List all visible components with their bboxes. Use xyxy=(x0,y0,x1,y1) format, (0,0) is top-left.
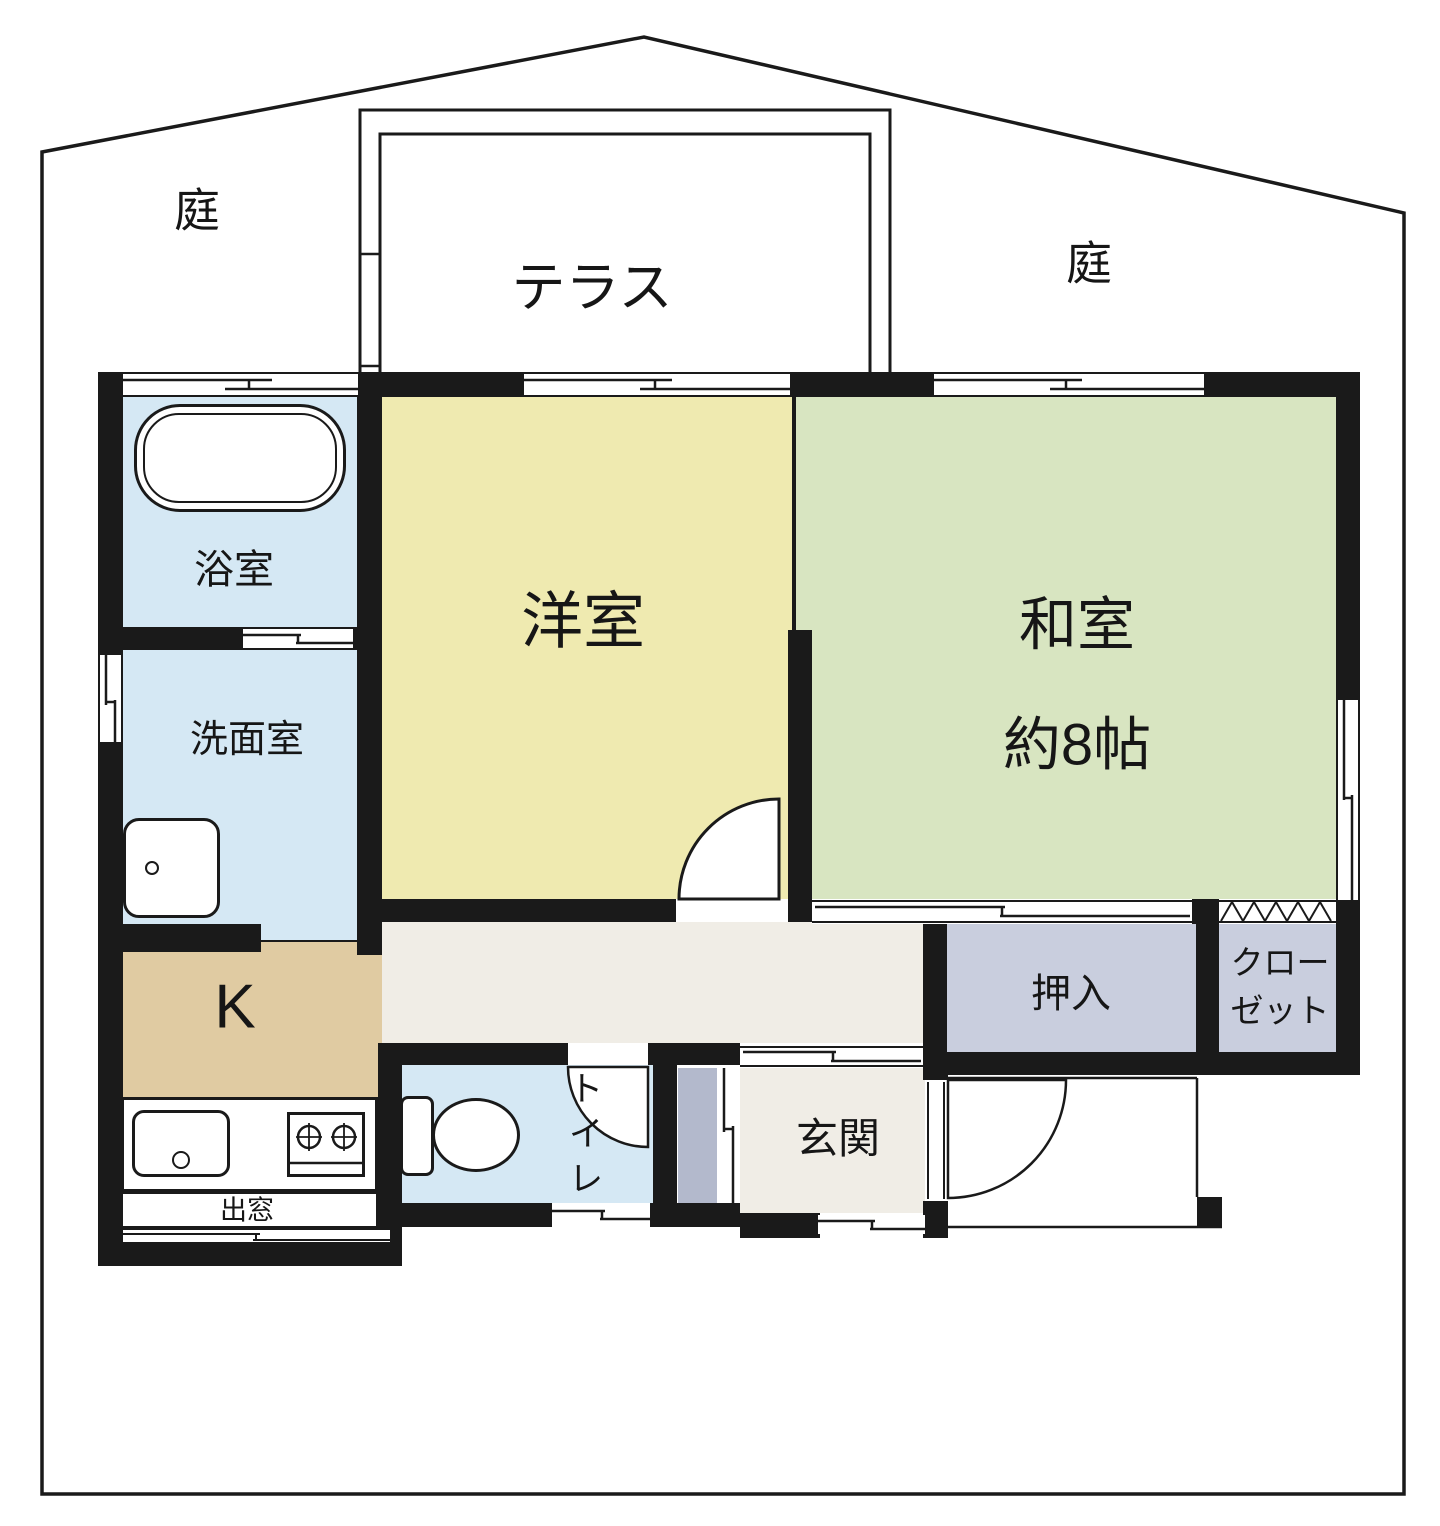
wall-washroom-bottom xyxy=(98,924,261,952)
kitchen-label: K xyxy=(214,971,255,1042)
western-room-label: 洋室 xyxy=(521,586,645,657)
japanese-room-size-label: 約8帖 xyxy=(1003,713,1151,780)
wall-toilet-top-left xyxy=(382,1043,568,1065)
terrace-outline-inner xyxy=(380,134,870,376)
garden-label-left: 庭 xyxy=(174,185,220,238)
wall-western-japanese xyxy=(788,630,812,922)
washbasin-drain-icon xyxy=(145,861,159,875)
front-door-frame xyxy=(925,1080,948,1201)
shoe-cabinet xyxy=(678,1068,717,1203)
garden-label-right: 庭 xyxy=(1066,238,1112,291)
bathroom-label: 浴室 xyxy=(194,547,274,593)
wall-toilet-right xyxy=(653,1065,677,1203)
wall-toilet-bottom-right xyxy=(650,1203,740,1227)
closet-hatch-icon xyxy=(1219,899,1336,924)
wall-left xyxy=(98,372,123,1266)
terrace-outline-outer xyxy=(360,110,890,376)
wall-door-column-top xyxy=(923,1052,948,1080)
wall-door-column-bottom xyxy=(923,1201,948,1238)
wall-partition-thin xyxy=(792,397,796,633)
front-door-icon xyxy=(948,1080,1066,1198)
washbasin-icon xyxy=(123,818,220,918)
floor-plan: 庭 庭 テラス 浴室 洗面室 洋室 和室 約8帖 K 出窓 ト イ レ 玄関 押… xyxy=(0,0,1440,1526)
wall-right xyxy=(1336,372,1360,1075)
washroom-label: 洗面室 xyxy=(190,719,304,763)
bathtub-icon xyxy=(134,404,346,512)
wall-top xyxy=(98,372,1360,397)
toilet-label: ト イ レ xyxy=(569,1070,603,1199)
wall-entrance-bottom xyxy=(740,1213,820,1238)
oshiire-label: 押入 xyxy=(1031,971,1111,1017)
porch-outline xyxy=(948,1078,1222,1227)
wall-bath-washroom xyxy=(123,627,357,650)
closet-label: クロー ゼット xyxy=(1231,939,1330,1035)
wall-center-vertical xyxy=(357,372,382,955)
toilet-tank-icon xyxy=(400,1096,434,1176)
wall-kitchen-bottom xyxy=(98,1244,402,1266)
wall-toilet-top-right xyxy=(648,1043,740,1065)
hallway-floor xyxy=(382,922,923,1043)
japanese-room-label: 和室 xyxy=(1019,593,1135,660)
wall-bottom-right xyxy=(923,1052,1360,1075)
wall-oshiire-left xyxy=(923,924,947,1052)
wall-western-bottom xyxy=(382,899,676,922)
wall-toilet-bottom-left xyxy=(382,1203,552,1227)
entrance-label: 玄関 xyxy=(796,1115,880,1163)
toilet-bowl-icon xyxy=(432,1098,520,1172)
wall-band-stub xyxy=(1192,899,1219,924)
bay-window-label: 出窓 xyxy=(220,1195,274,1226)
stove-icon xyxy=(287,1112,365,1177)
terrace-label: テラス xyxy=(512,257,673,319)
wall-oshiire-closet xyxy=(1196,924,1219,1052)
sink-drain-icon xyxy=(172,1151,190,1169)
